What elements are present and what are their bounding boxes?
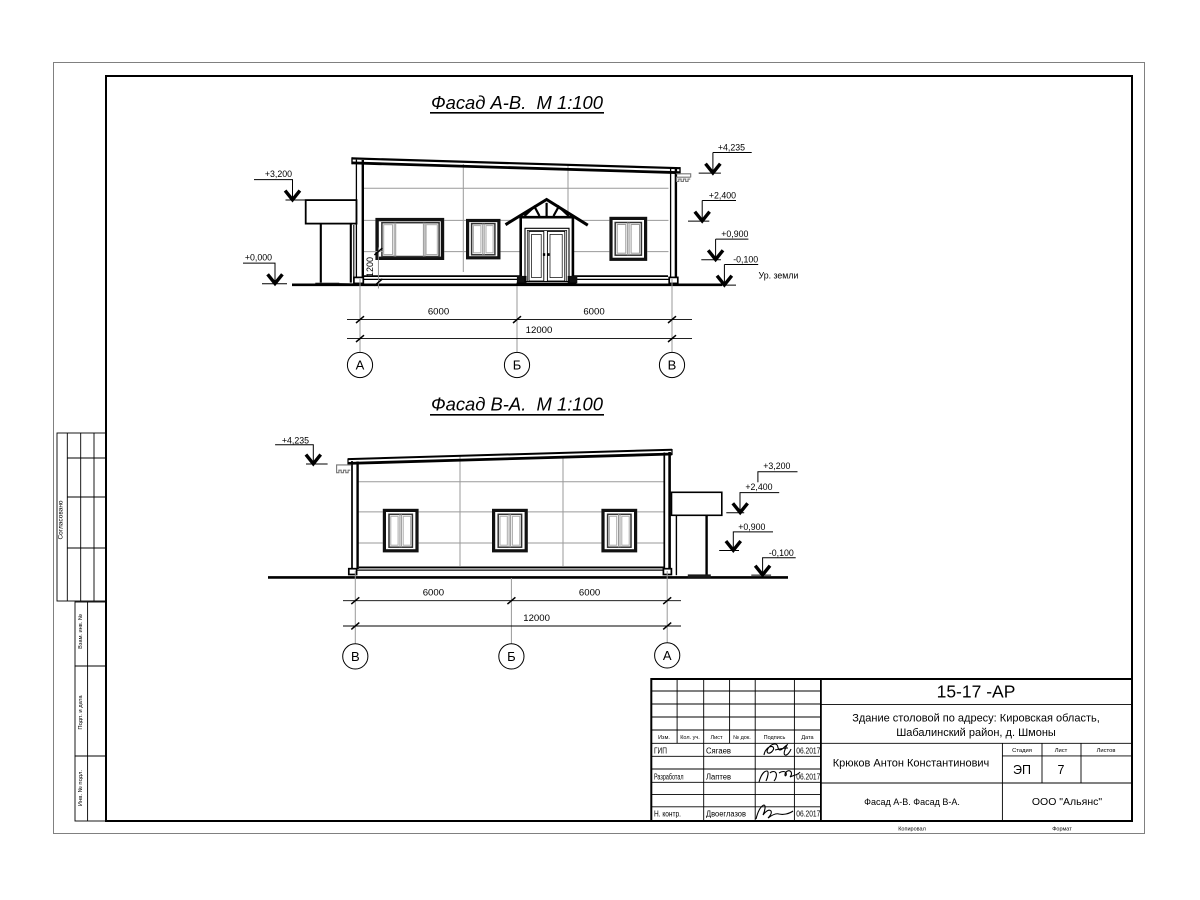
svg-text:Шабалинский район, д. Шмоны: Шабалинский район, д. Шмоны <box>896 727 1056 739</box>
svg-text:+4,235: +4,235 <box>718 143 745 153</box>
svg-text:Двоеглазов: Двоеглазов <box>706 810 746 819</box>
svg-text:06.2017: 06.2017 <box>796 772 820 781</box>
svg-text:+0,900: +0,900 <box>738 522 765 532</box>
svg-text:Сягаев: Сягаев <box>706 746 731 755</box>
svg-text:-0,100: -0,100 <box>733 254 758 264</box>
svg-text:+2,400: +2,400 <box>709 190 736 200</box>
svg-text:6000: 6000 <box>583 306 604 317</box>
svg-text:+3,200: +3,200 <box>265 169 292 179</box>
svg-text:12000: 12000 <box>523 613 550 624</box>
svg-text:Дата: Дата <box>801 735 814 741</box>
svg-text:Копировал: Копировал <box>898 826 926 832</box>
svg-text:ООО "Альянс": ООО "Альянс" <box>1032 796 1102 808</box>
svg-text:Фасад А-В. М 1:100: Фасад А-В. М 1:100 <box>431 92 604 113</box>
svg-text:06.2017: 06.2017 <box>796 810 820 819</box>
svg-text:6000: 6000 <box>428 306 449 317</box>
svg-text:Кол. уч.: Кол. уч. <box>680 735 700 741</box>
svg-text:Листов: Листов <box>1097 748 1116 754</box>
svg-text:Лист: Лист <box>711 735 723 741</box>
svg-text:Здание столовой по адресу: Кир: Здание столовой по адресу: Кировская обл… <box>852 713 1100 725</box>
svg-text:Подпись: Подпись <box>764 735 786 741</box>
svg-text:Согласовано: Согласовано <box>58 500 65 539</box>
svg-text:1200: 1200 <box>365 257 375 277</box>
svg-text:7: 7 <box>1058 763 1065 777</box>
svg-text:+2,400: +2,400 <box>745 482 772 492</box>
svg-text:06.2017: 06.2017 <box>796 746 820 755</box>
svg-text:Взам. инв. №: Взам. инв. № <box>78 614 84 649</box>
svg-text:Лаптев: Лаптев <box>706 772 731 781</box>
svg-text:Инв. № подл.: Инв. № подл. <box>78 770 84 806</box>
svg-text:Формат: Формат <box>1052 826 1072 832</box>
svg-text:6000: 6000 <box>579 588 600 599</box>
svg-text:ГИП: ГИП <box>654 746 667 755</box>
svg-text:+0,900: +0,900 <box>721 229 748 239</box>
svg-text:+3,200: +3,200 <box>763 461 790 471</box>
svg-text:Крюков Антон Константинович: Крюков Антон Константинович <box>833 758 990 770</box>
svg-text:В: В <box>351 649 360 664</box>
svg-text:Н. контр.: Н. контр. <box>654 810 681 819</box>
svg-text:Подп. и дата: Подп. и дата <box>78 695 84 730</box>
svg-text:6000: 6000 <box>423 588 444 599</box>
svg-text:15-17 -АР: 15-17 -АР <box>937 682 1016 702</box>
svg-text:+0,000: +0,000 <box>245 252 272 262</box>
svg-text:№ док.: № док. <box>733 735 751 741</box>
svg-text:-0,100: -0,100 <box>769 548 794 558</box>
svg-text:Разработал: Разработал <box>654 772 684 781</box>
svg-text:12000: 12000 <box>526 325 553 336</box>
svg-text:Б: Б <box>513 358 522 373</box>
svg-text:В: В <box>668 358 677 373</box>
svg-text:Ур. земли: Ур. земли <box>759 271 799 281</box>
svg-text:Фасад А-В. Фасад В-А.: Фасад А-В. Фасад В-А. <box>864 797 960 807</box>
svg-text:Стадия: Стадия <box>1012 748 1032 754</box>
svg-text:Изм.: Изм. <box>658 735 670 741</box>
svg-text:Б: Б <box>507 649 516 664</box>
svg-text:ЭП: ЭП <box>1013 763 1031 777</box>
svg-text:А: А <box>356 358 365 373</box>
svg-text:Лист: Лист <box>1055 748 1068 754</box>
svg-text:Фасад В-А. М 1:100: Фасад В-А. М 1:100 <box>431 394 604 415</box>
svg-text:А: А <box>663 648 672 663</box>
svg-text:+4,235: +4,235 <box>282 435 309 445</box>
